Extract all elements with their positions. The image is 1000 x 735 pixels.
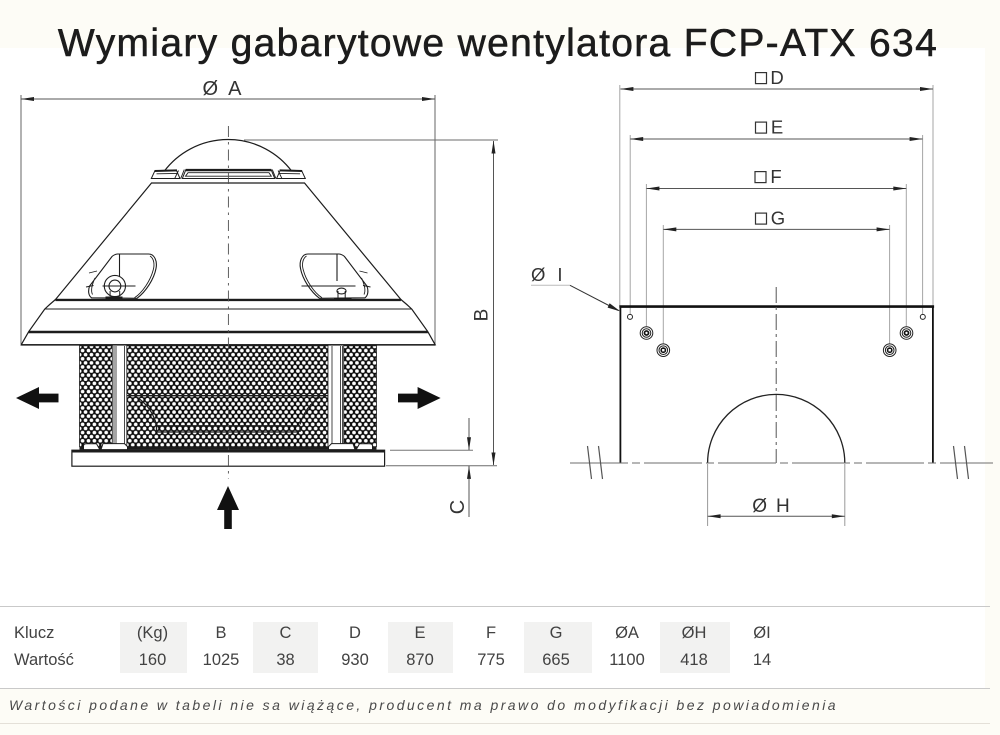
- svg-text:C: C: [447, 500, 469, 514]
- svg-text:ØI: ØI: [531, 264, 563, 285]
- svg-text:G: G: [771, 208, 785, 229]
- svg-text:F: F: [770, 166, 781, 187]
- svg-text:ØA: ØA: [203, 78, 243, 100]
- svg-text:ØH: ØH: [752, 496, 790, 517]
- svg-text:B: B: [472, 309, 493, 322]
- svg-text:E: E: [771, 117, 783, 138]
- svg-text:D: D: [770, 67, 783, 88]
